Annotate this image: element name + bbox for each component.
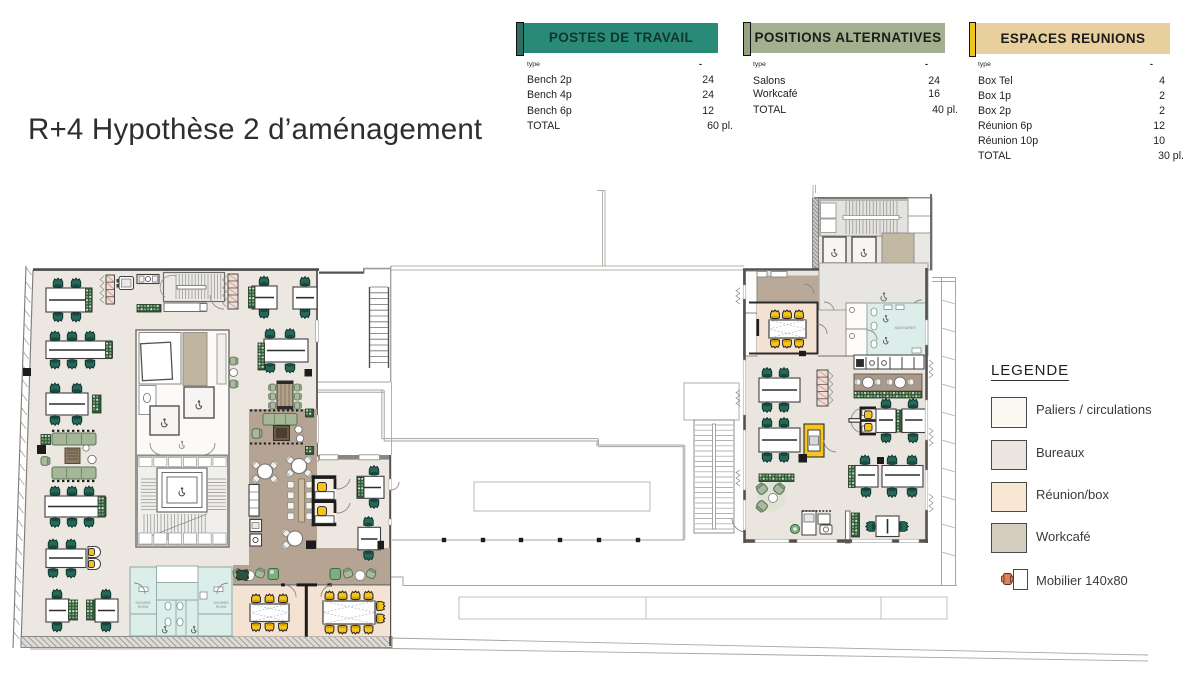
svg-text:ROOM: ROOM xyxy=(216,605,227,609)
svg-text:SANITAIRES: SANITAIRES xyxy=(894,326,916,330)
svg-text:ROOM: ROOM xyxy=(138,605,149,609)
